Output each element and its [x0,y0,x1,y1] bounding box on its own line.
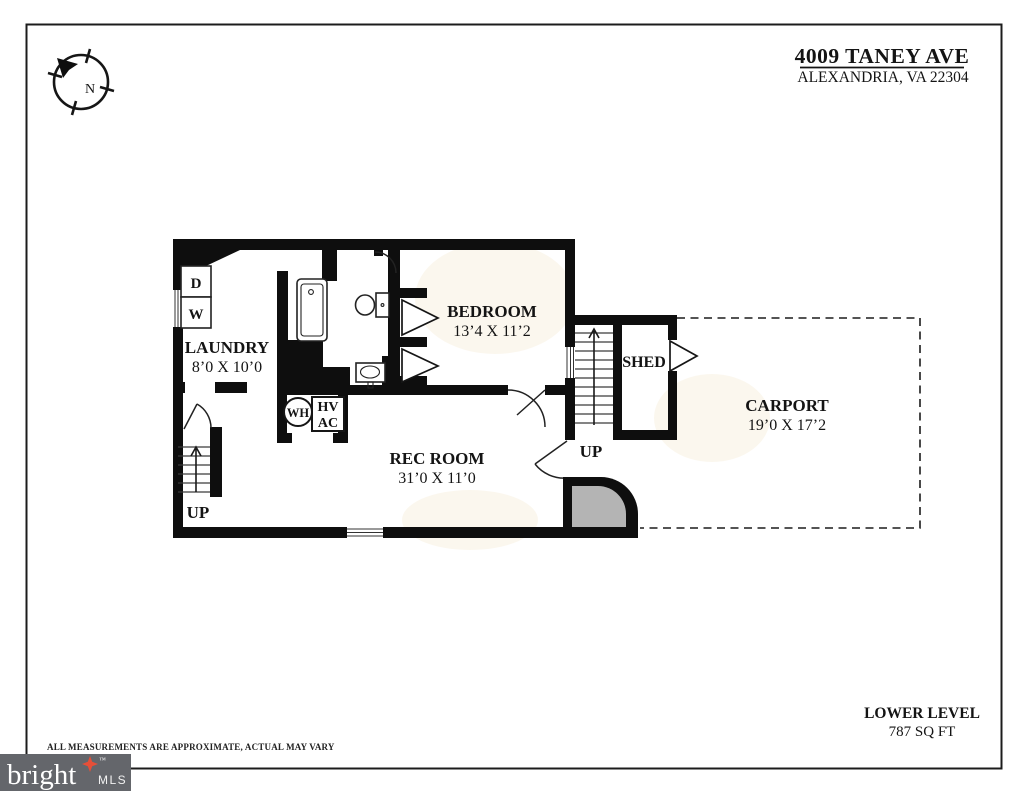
wall-segment [668,371,677,440]
page-border [27,25,1002,769]
wall-segment [545,385,575,395]
north-label: N [85,82,95,97]
logo-tm: ™ [99,756,106,764]
bedroom-dims: 13’4 X 11’2 [453,323,531,340]
wall-segment [613,315,622,440]
wall-segment [173,250,240,266]
level-area: 787 SQ FT [889,724,956,740]
stairs-right [575,329,613,425]
wall-segment [210,427,222,497]
level-name: LOWER LEVEL [864,705,980,722]
closet-stub [400,288,427,298]
wall-segment [277,433,292,443]
recroom-name: REC ROOM [390,449,485,468]
address-line2: ALEXANDRIA, VA 22304 [797,69,968,86]
stoop [563,477,638,538]
wall-segment [173,239,575,250]
wall-segment [173,527,347,538]
bedroom-name: BEDROOM [447,302,537,321]
dryer-label: D [191,276,202,292]
floorplan-drawing: N [0,0,1024,791]
logo-suffix-text: MLS [98,773,127,787]
water-heater-label: WH [287,406,310,420]
utility-fixtures: WH HV AC [284,397,344,431]
watermark-blob [402,490,538,550]
brightmls-logo: bright ™ MLS [0,754,131,791]
wall-segment [388,245,400,395]
hvac-label-bottom: AC [318,416,338,431]
bedroom-door-arc [508,390,545,427]
north-arrow-icon [57,58,78,78]
wall-segment [173,327,183,538]
stairs-right-up-label: UP [580,442,603,461]
wall-segment [173,382,185,393]
hvac-label-top: HV [318,400,339,415]
laundry-stair-door-arc [184,404,211,429]
up-arrow-icon [191,447,201,492]
disclaimer-text: ALL MEASUREMENTS ARE APPROXIMATE, ACTUAL… [47,742,335,752]
carport-dims: 19’0 X 17’2 [748,417,826,434]
carport-name: CARPORT [745,396,829,415]
closet-stub [400,337,427,347]
wall-segment [613,430,677,440]
footer: LOWER LEVEL 787 SQ FT ALL MEASUREMENTS A… [47,705,980,752]
up-arrow-icon [589,329,599,425]
address-header: 4009 TANEY AVE ALEXANDRIA, VA 22304 [795,44,970,86]
logo-brand-text: bright [7,759,76,791]
stairs-left-up-label: UP [187,503,210,522]
toilet-tank [376,293,389,317]
wall-segment [215,382,247,393]
floorplan-page: N [0,0,1024,791]
wall-segment [277,385,508,395]
laundry-appliances: D W [181,266,211,328]
wall-segment [668,315,677,340]
wall-segment [565,239,575,347]
washer-label: W [189,307,204,323]
laundry-dims: 8’0 X 10’0 [192,359,262,376]
compass-icon: N [48,49,114,115]
toilet-icon [356,295,375,315]
wall-segment [333,433,348,443]
shed-door-icon [670,341,697,371]
laundry-name: LAUNDRY [185,338,269,357]
address-line1: 4009 TANEY AVE [795,44,970,68]
shed-name: SHED [622,354,666,371]
wall-segment [322,250,337,281]
recroom-exit-door-arc [535,441,567,478]
recroom-dims: 31’0 X 11’0 [398,470,476,487]
